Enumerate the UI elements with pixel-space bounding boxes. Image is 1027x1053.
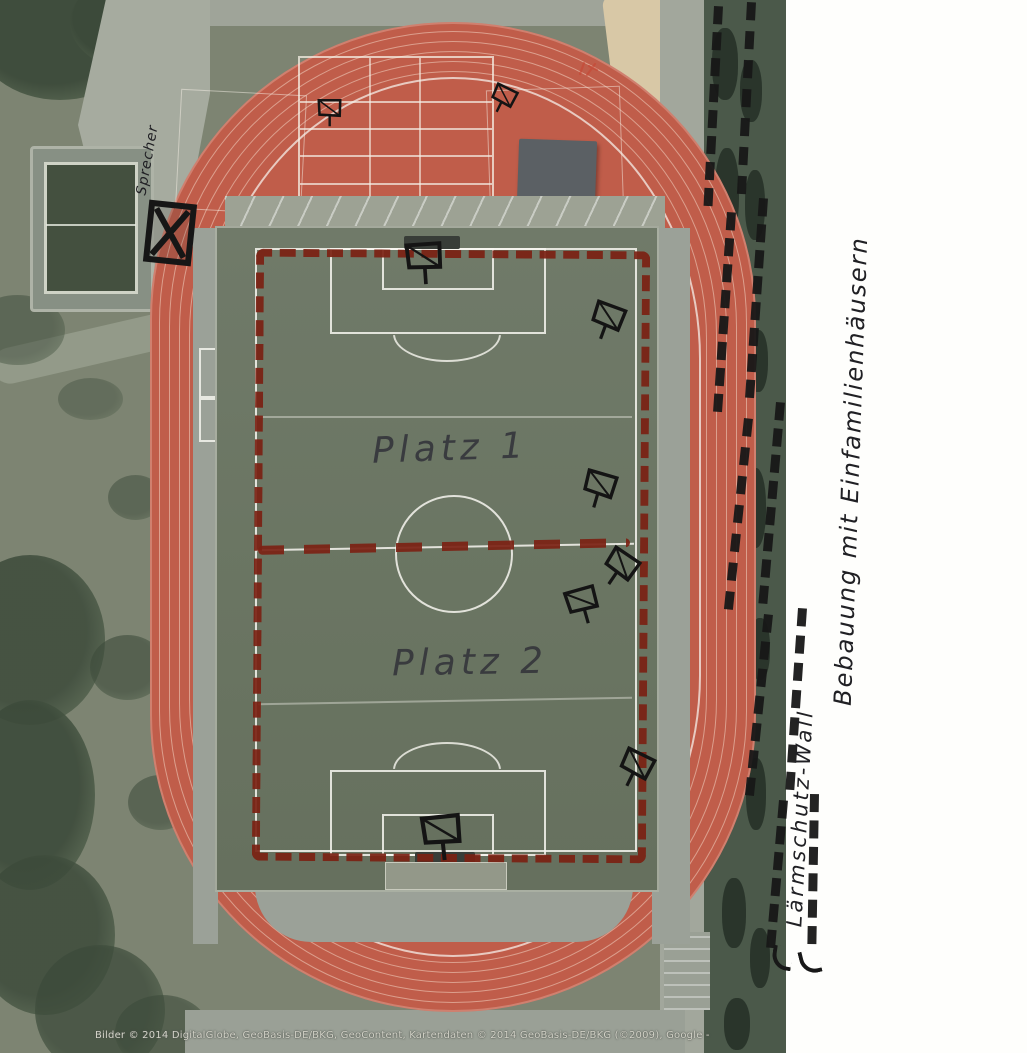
hedge-tree [724, 998, 750, 1050]
map-attribution: Bilder © 2014 DigitalGlobe, GeoBasis-DE/… [95, 1030, 775, 1041]
mini-court [44, 162, 138, 294]
tree-clump [0, 555, 105, 725]
floodlight-symbol [578, 464, 625, 517]
red-pen-mark [576, 60, 600, 82]
hedge-tree [722, 878, 746, 948]
south-apron [255, 886, 633, 942]
label-platz-1: Platz 1 [371, 425, 528, 471]
mini-court-midline [46, 224, 136, 226]
sprint-grid-court [298, 56, 494, 212]
scanned-page: Platz 1 Platz 2 Sprecher Bilder © 2014 D… [0, 0, 1027, 1053]
top-path [150, 0, 650, 26]
speaker-position-box [143, 200, 197, 267]
tree-clump [58, 378, 123, 420]
aerial-photo: Platz 1 Platz 2 Sprecher Bilder © 2014 D… [0, 0, 786, 1053]
floodlight-symbol [585, 294, 636, 350]
label-platz-2: Platz 2 [392, 641, 549, 685]
hatched-apron [225, 196, 665, 230]
paper-margin [786, 0, 1027, 1053]
